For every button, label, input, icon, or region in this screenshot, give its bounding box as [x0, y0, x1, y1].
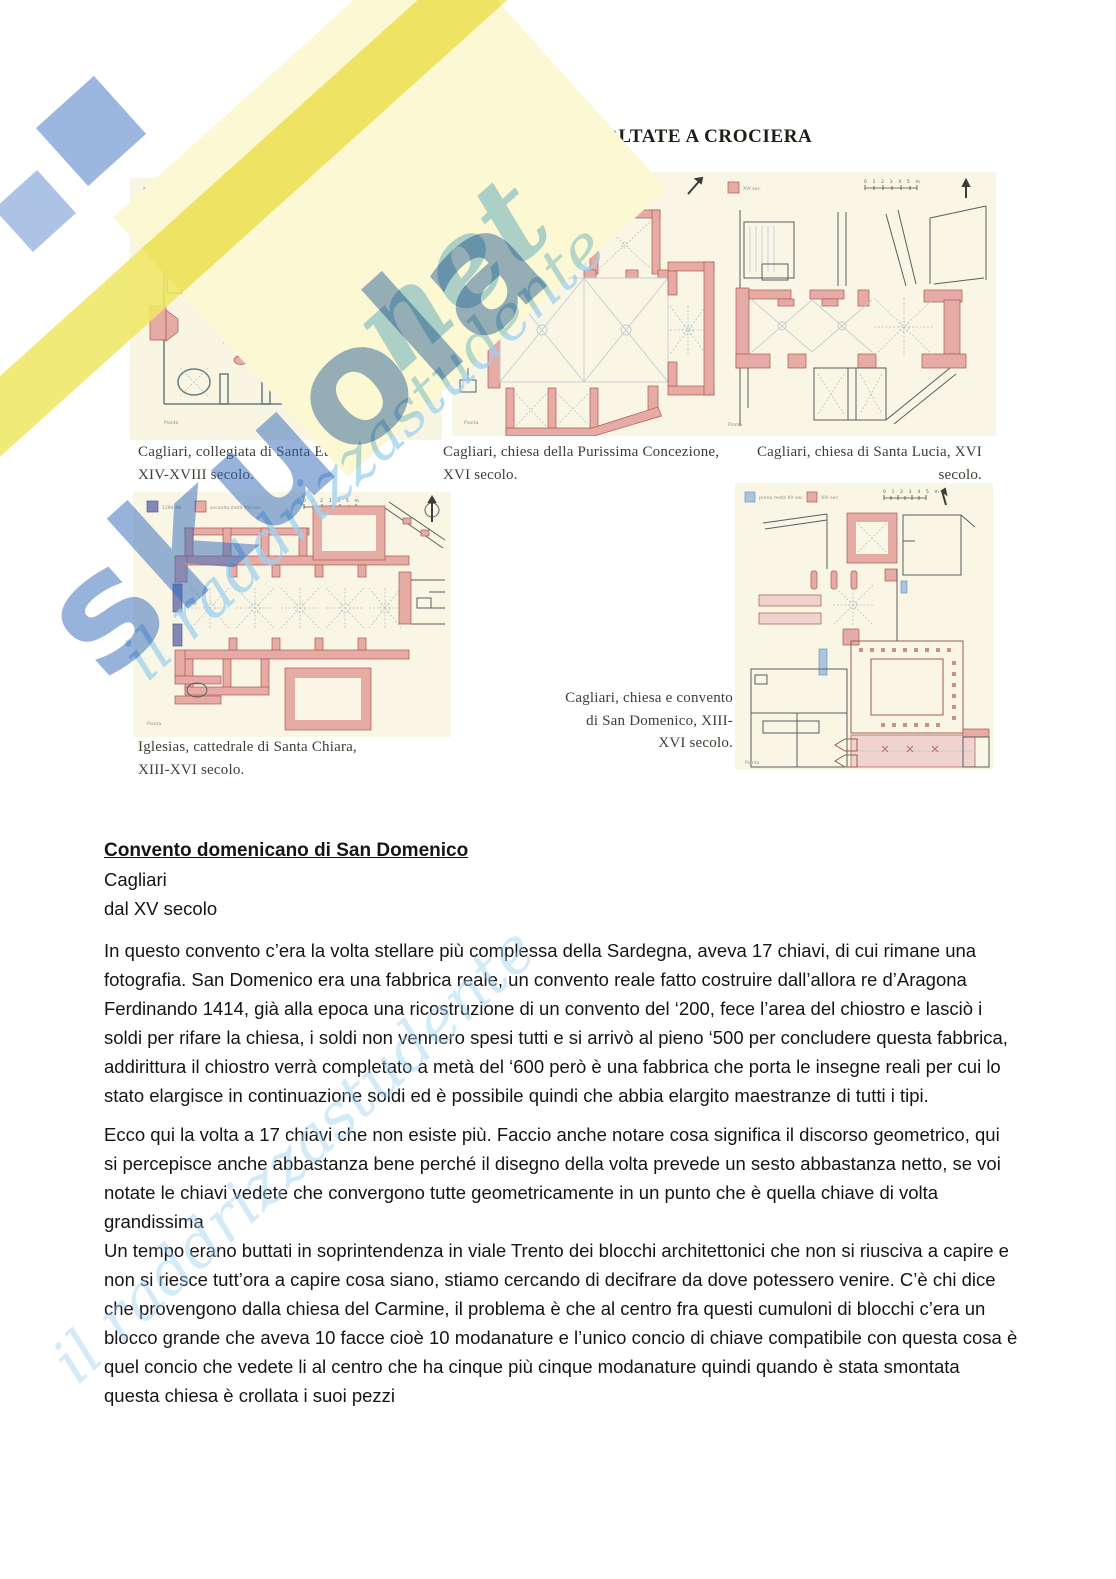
svg-text:0 1 2 3 4 5 m: 0 1 2 3 4 5 m [326, 185, 384, 191]
paragraph: Ecco qui la volta a 17 chiavi che non es… [104, 1120, 1018, 1236]
floor-plan-santa-chiara: 1284-88 seconda metà XVI sec. 0 1 2 3 4 … [133, 492, 451, 737]
legend-swatch [144, 188, 155, 199]
legend-swatch [745, 492, 755, 502]
legend-label: XVI sec. [743, 186, 761, 192]
pianta-label: Pianta [164, 420, 178, 426]
caption-san-domenico: Cagliari, chiesa e convento di San Domen… [533, 687, 733, 755]
caption-santa-chiara: Iglesias, cattedrale di Santa Chiara, XI… [138, 736, 400, 781]
legend-label: prima metà XVI sec. [479, 185, 526, 192]
article-place: Cagliari [104, 865, 1018, 894]
page-title: CHIESE SARDE CON NAVATE VOLTATE A CROCIE… [0, 126, 1116, 148]
floor-plan-purissima-concezione: prima metà XVI sec. 0 1 2 3 4 5 m [452, 172, 720, 436]
pianta-label: Pianta [147, 721, 161, 727]
pianta-label: Pianta [745, 760, 759, 766]
paragraph: Un tempo erano buttati in soprintendenza… [104, 1236, 1018, 1410]
floor-plan-san-domenico: prima metà XV sec. XVI sec. 0 1 2 3 4 5 … [735, 483, 993, 770]
scale-bar: 0 1 2 3 4 5 m [864, 179, 922, 190]
caption-santa-lucia: Cagliari, chiesa di Santa Lucia, XVI sec… [740, 441, 982, 486]
svg-text:0 1 2 3 4 5 m: 0 1 2 3 4 5 m [303, 498, 361, 504]
svg-text:0 1 2 3 4 5 m: 0 1 2 3 4 5 m [864, 179, 922, 185]
legend-label: 1284-88 [162, 505, 181, 511]
caption-purissima-concezione: Cagliari, chiesa della Purissima Concezi… [443, 441, 743, 486]
floor-plan-santa-lucia: XVI sec. 0 1 2 3 4 5 m [718, 172, 996, 436]
scale-bar: 0 1 2 3 4 5 m [598, 179, 656, 190]
svg-text:0 1 2 3 4 5 m: 0 1 2 3 4 5 m [598, 179, 656, 185]
legend-swatch [195, 501, 206, 512]
article-heading: Convento domenicano di San Domenico [104, 836, 1018, 865]
legend-swatch [464, 182, 475, 193]
document-page: CHIESE SARDE CON NAVATE VOLTATE A CROCIE… [0, 0, 1116, 1579]
pianta-label: Pianta [464, 420, 478, 426]
scale-bar: 0 1 2 3 4 5 m [326, 185, 384, 196]
paragraph: In questo convento c’era la volta stella… [104, 936, 1018, 1110]
legend-swatch [147, 501, 158, 512]
pianta-label: Pianta [728, 422, 742, 428]
article-period: dal XV secolo [104, 894, 1018, 923]
svg-text:0 1 2 3 4 5 m: 0 1 2 3 4 5 m [883, 489, 941, 495]
legend-swatch [728, 182, 739, 193]
legend-swatch [807, 492, 817, 502]
legend-label: XVI sec. [821, 495, 839, 501]
floor-plan-santa-eulalia: ante 1275-XV sec. 0 1 2 3 4 5 m [130, 178, 442, 440]
legend-label: prima metà XV sec. [759, 494, 804, 501]
legend-label: ante 1275-XV sec. [160, 192, 202, 198]
legend-label: seconda metà XVI sec. [210, 504, 262, 511]
watermark-letter-fragment [0, 170, 76, 252]
caption-santa-eulalia: Cagliari, collegiata di Santa Eulalia, X… [138, 441, 396, 486]
article: Convento domenicano di San Domenico Cagl… [104, 836, 1018, 1410]
